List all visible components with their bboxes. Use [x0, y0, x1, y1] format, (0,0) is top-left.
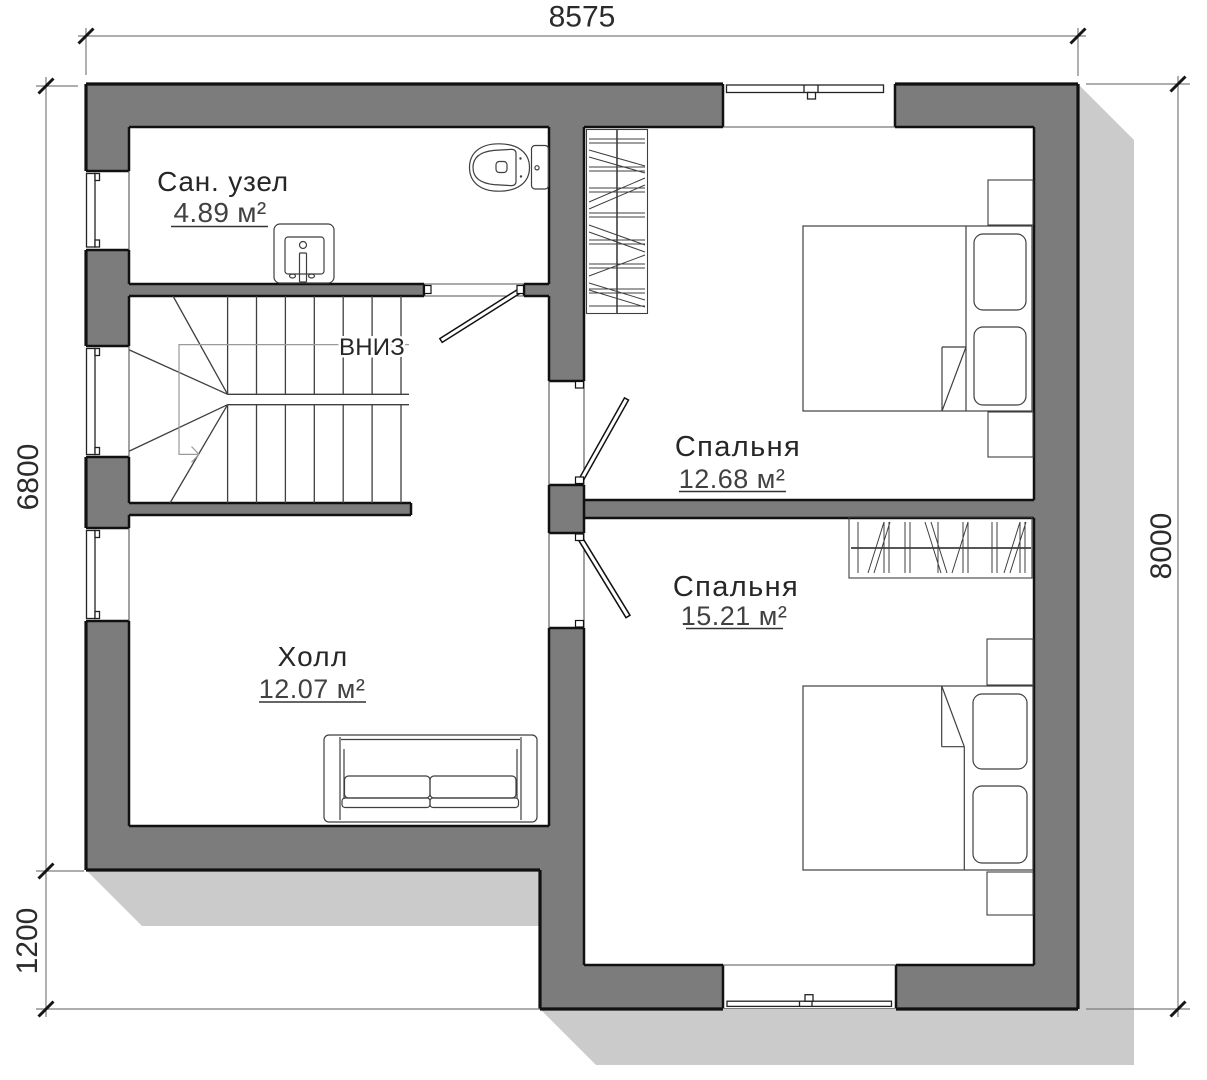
svg-text:12.68 м²: 12.68 м² — [679, 464, 786, 494]
svg-text:15.21 м²: 15.21 м² — [681, 601, 788, 631]
svg-text:8000: 8000 — [1145, 513, 1178, 580]
svg-text:Спальня: Спальня — [673, 571, 799, 603]
svg-text:Спальня: Спальня — [675, 431, 801, 463]
svg-text:Холл: Холл — [278, 641, 349, 672]
svg-text:ВНИЗ: ВНИЗ — [339, 334, 405, 361]
svg-text:1200: 1200 — [11, 908, 44, 975]
svg-text:4.89 м²: 4.89 м² — [174, 197, 267, 228]
svg-text:8575: 8575 — [549, 1, 616, 34]
svg-text:Сан. узел: Сан. узел — [157, 166, 289, 197]
svg-text:12.07 м²: 12.07 м² — [259, 674, 366, 704]
svg-text:6800: 6800 — [12, 444, 45, 511]
